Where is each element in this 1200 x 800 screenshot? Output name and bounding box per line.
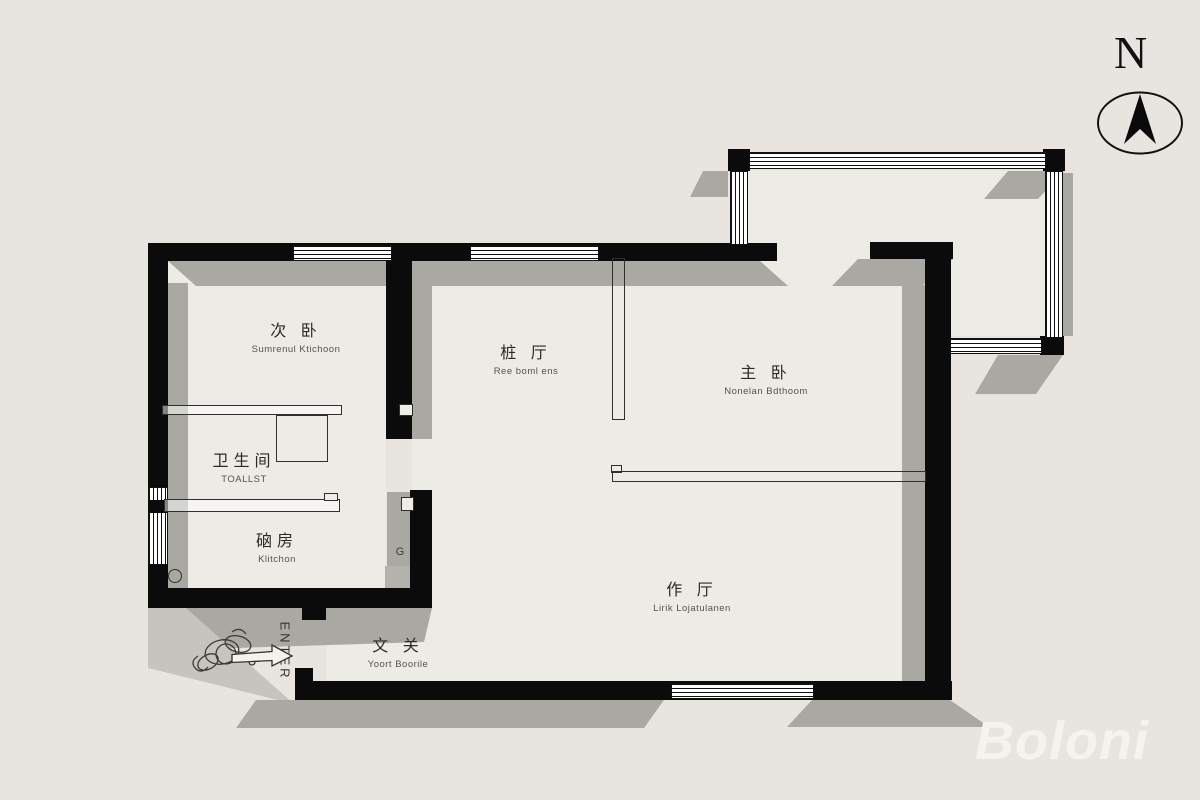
- room-name-cn: 主 卧: [724, 359, 808, 383]
- room-name-en: Lirik Lojatulanen: [653, 603, 731, 614]
- room-name-cn: 次 卧: [252, 317, 341, 341]
- column-marker-upper: [399, 404, 413, 416]
- balcony-post-bottom-right: [1040, 336, 1064, 355]
- room-label-entry-hall: 文 关 Yoort Boorile: [368, 632, 429, 670]
- balcony-post-top-right: [1043, 149, 1065, 171]
- window-top-mid: [470, 245, 599, 261]
- partition-line-tab: [611, 465, 622, 473]
- room-name-cn: 文 关: [368, 632, 429, 656]
- window-balcony-bottom: [950, 338, 1042, 354]
- doodle-scribble-icon: [193, 629, 260, 673]
- room-label-toilet: 卫生间 TOALLST: [212, 447, 275, 485]
- counter-toilet: [162, 405, 342, 415]
- door-stop-circle: [168, 569, 182, 583]
- room-label-dining-room: 桩 厅 Ree boml ens: [494, 339, 559, 377]
- window-top-left: [293, 245, 392, 261]
- room-name-en: TOALLST: [212, 474, 275, 485]
- room-name-cn: 桩 厅: [494, 339, 559, 363]
- balcony-post-top-left: [728, 149, 750, 171]
- wall-master-top: [870, 242, 953, 259]
- room-name-cn: 作 厅: [653, 576, 731, 600]
- watermark: Boloni: [975, 710, 1149, 772]
- room-name-cn: 卫生间: [212, 447, 275, 471]
- g-label: G: [396, 546, 405, 558]
- room-name-en: Nonelan Bdthoom: [724, 386, 808, 397]
- wall-living-bottom: [295, 681, 952, 700]
- room-name-cn: 硇房: [256, 527, 298, 551]
- room-label-kitchen: 硇房 Klitchon: [256, 527, 298, 565]
- room-name-en: Ree boml ens: [494, 366, 559, 377]
- compass: N: [1090, 30, 1200, 165]
- counter-legs: [276, 415, 328, 462]
- shadow-layer: [0, 0, 1200, 800]
- entry-doodle-and-arrow: [180, 620, 310, 680]
- room-name-en: Yoort Boorile: [368, 659, 429, 670]
- room-name-en: Sumrenul Ktichoon: [252, 344, 341, 355]
- counter-kitchen-tab: [324, 493, 338, 501]
- partition-line-vertical: [612, 258, 625, 420]
- room-label-master-bedroom: 主 卧 Nonelan Bdthoom: [724, 359, 808, 397]
- entry-arrow-icon: [232, 645, 292, 666]
- wall-top: [148, 243, 777, 261]
- counter-kitchen: [164, 499, 340, 512]
- compass-n-label: N: [1114, 30, 1147, 76]
- column-marker-lower: [401, 497, 414, 511]
- room-name-en: Klitchon: [256, 554, 298, 565]
- window-balcony-top: [749, 152, 1046, 169]
- window-living-bottom: [671, 683, 814, 699]
- window-balcony-left: [730, 171, 748, 245]
- wall-kitchen-bottom: [148, 588, 432, 608]
- partition-line-horizontal: [612, 471, 926, 482]
- wall-right: [925, 257, 951, 700]
- window-balcony-right: [1045, 171, 1063, 338]
- wall-entry-stub-upper: [302, 588, 326, 620]
- room-label-living-room: 作 厅 Lirik Lojatulanen: [653, 576, 731, 614]
- floor-plan-canvas: 次 卧 Sumrenul Ktichoon 桩 厅 Ree boml ens 主…: [0, 0, 1200, 800]
- room-label-secondary-bedroom: 次 卧 Sumrenul Ktichoon: [252, 317, 341, 355]
